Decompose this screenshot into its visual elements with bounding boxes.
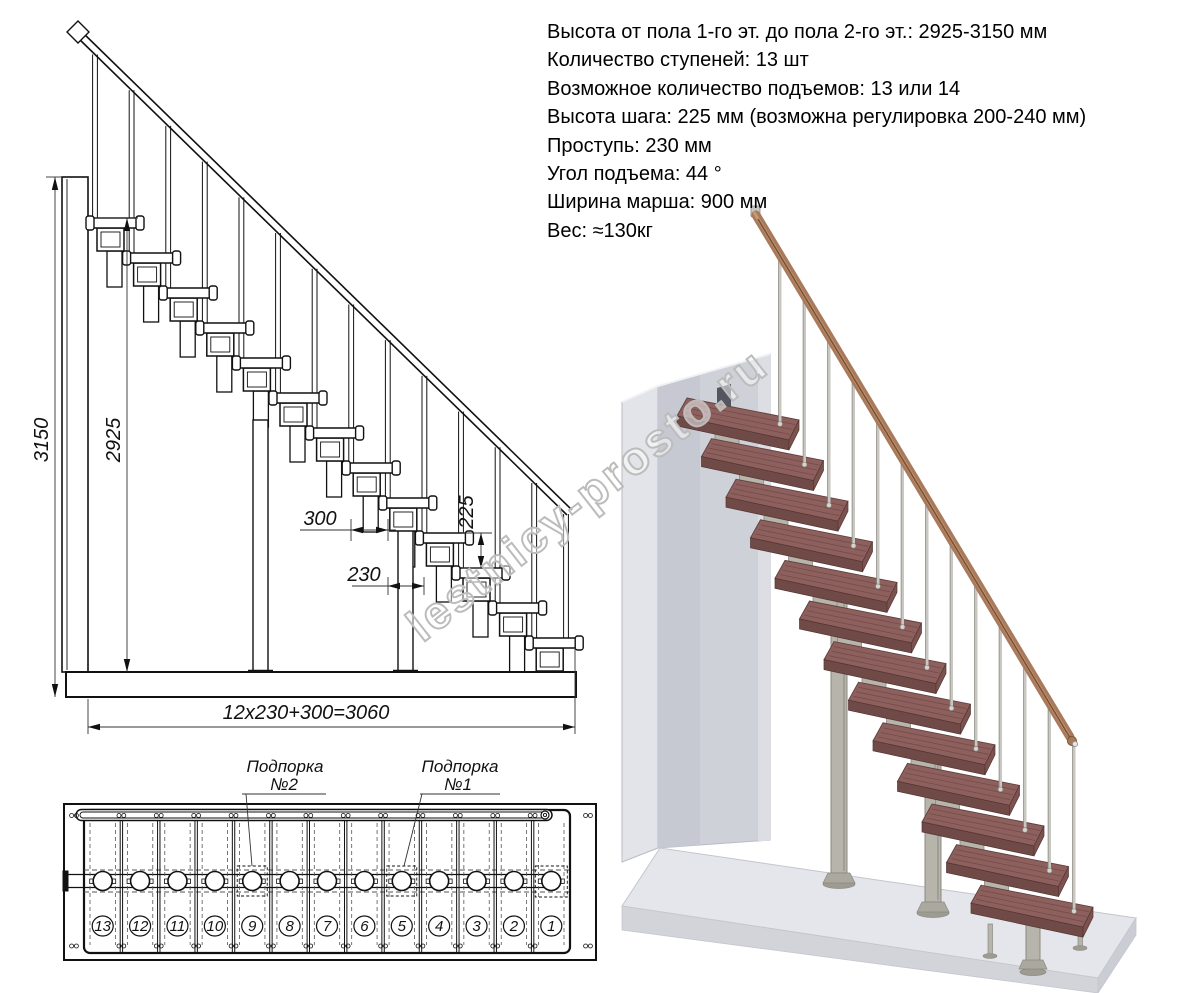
elevation-geometry: [62, 21, 583, 697]
plan-step-number: 10: [207, 918, 224, 935]
dim-total-height: 3150: [31, 418, 53, 463]
spec-line: Возможное количество подъемов: 13 или 14: [547, 75, 1107, 103]
support1-title: Подпорка: [422, 757, 499, 776]
spec-line: Количество ступеней: 13 шт: [547, 46, 1107, 74]
plan-step-number: 7: [323, 918, 332, 935]
spec-line: Высота шага: 225 мм (возможна регулировк…: [547, 103, 1107, 131]
dim-step-height: 225: [456, 494, 478, 529]
elevation-drawing: 3150 2925 300 230: [0, 0, 610, 745]
specs-panel: Высота от пола 1-го эт. до пола 2-го эт.…: [547, 18, 1107, 245]
plan-step-number: 4: [435, 918, 443, 935]
dim-top-run: 300: [303, 508, 336, 530]
plan-rail: [76, 810, 552, 821]
plan-step-number: 11: [170, 918, 186, 935]
spec-line: Ширина марша: 900 мм: [547, 188, 1107, 216]
support2-title: Подпорка: [247, 757, 324, 776]
plan-step-number: 1: [547, 918, 555, 935]
plan-step-number: 5: [398, 918, 407, 935]
plan-step-number: 6: [360, 918, 369, 935]
spec-line: Высота от пола 1-го эт. до пола 2-го эт.…: [547, 18, 1107, 46]
support1-number: №1: [444, 775, 472, 794]
render-geometry: [622, 206, 1136, 993]
dim-clear-height: 2925: [103, 417, 125, 463]
spec-line: Угол подъема: 44 °: [547, 160, 1107, 188]
plan-step-number: 3: [472, 918, 481, 935]
plan-drawing: 13121110987654321 Подпорка №2 Подпорка №…: [40, 748, 610, 993]
plan-step-number: 2: [509, 918, 519, 935]
spec-line: Проступь: 230 мм: [547, 132, 1107, 160]
dim-total-run: 12x230+300=3060: [223, 702, 390, 724]
plan-step-number: 13: [94, 918, 111, 935]
plan-step-number: 8: [285, 918, 294, 935]
render-3d: [600, 200, 1191, 993]
drawing-sheet: 3150 2925 300 230: [0, 0, 1191, 993]
dim-tread-depth: 230: [346, 564, 380, 586]
plan-step-number: 12: [132, 918, 149, 935]
support2-number: №2: [270, 775, 298, 794]
spec-line: Вес: ≈130кг: [547, 217, 1107, 245]
plan-step-number: 9: [248, 918, 257, 935]
plan-details: 13121110987654321: [70, 814, 593, 949]
